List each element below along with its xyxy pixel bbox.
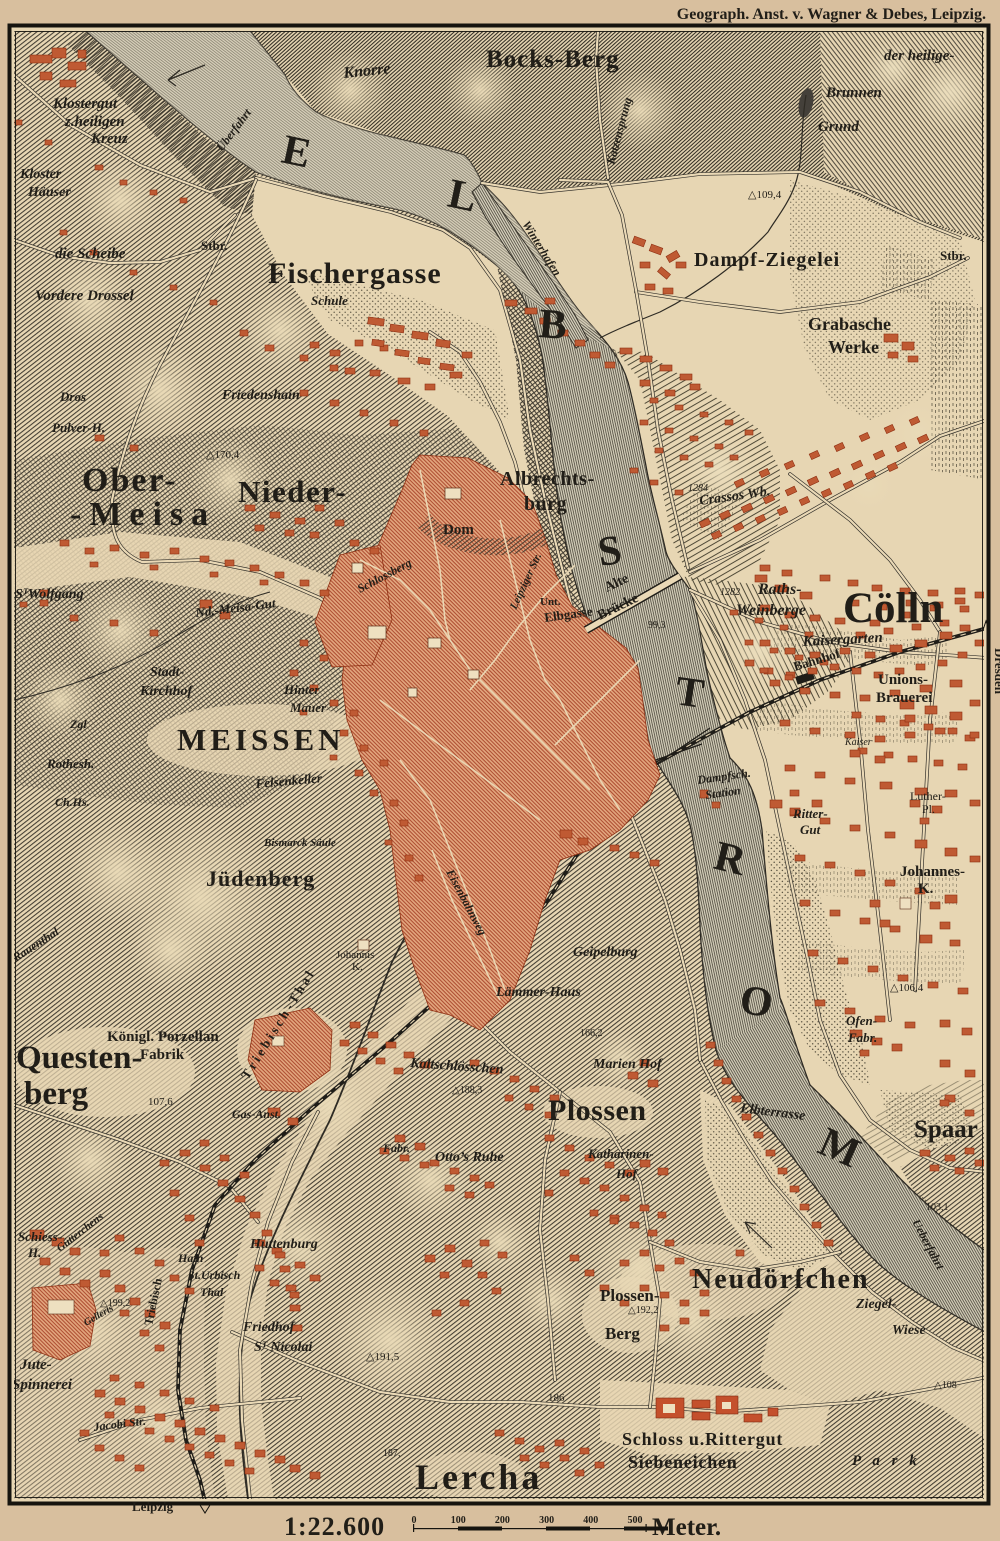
svg-text:△108: △108 [934, 1380, 957, 1391]
svg-text:Friedenshain: Friedenshain [221, 388, 300, 403]
svg-text:Königl. Porzellan: Königl. Porzellan [107, 1029, 219, 1045]
svg-text:500: 500 [628, 1515, 643, 1526]
svg-text:Wiese: Wiese [892, 1323, 926, 1338]
svg-text:Nieder-: Nieder- [238, 474, 347, 509]
svg-text:Siebeneichen: Siebeneichen [628, 1452, 738, 1472]
svg-text:Häuser: Häuser [27, 185, 71, 200]
svg-text:△170,4: △170,4 [206, 449, 240, 461]
svg-text:Ch.Hs.: Ch.Hs. [55, 795, 90, 809]
svg-text:Fabr.: Fabr. [382, 1141, 410, 1155]
svg-text:Dresden: Dresden [992, 648, 1000, 695]
svg-text:Huttenburg: Huttenburg [249, 1237, 318, 1252]
svg-text:Zgl: Zgl [69, 717, 87, 731]
svg-text:Kreuz: Kreuz [90, 131, 128, 147]
svg-text:Grund: Grund [818, 119, 859, 135]
svg-text:Questen-: Questen- [16, 1040, 143, 1076]
svg-text:Unt.: Unt. [540, 596, 561, 608]
svg-text:Kaiser: Kaiser [844, 737, 872, 748]
svg-text:Ritter-: Ritter- [792, 806, 828, 821]
svg-text:Fabr.: Fabr. [847, 1030, 877, 1045]
svg-text:Gas-Anst.: Gas-Anst. [232, 1107, 281, 1121]
svg-text:Geograph. Anst. v. Wagner & De: Geograph. Anst. v. Wagner & Debes, Leipz… [677, 6, 986, 23]
svg-text:Stadt-: Stadt- [150, 665, 185, 680]
svg-text:Schloss u.Rittergut: Schloss u.Rittergut [622, 1429, 783, 1449]
svg-text:Jüdenberg: Jüdenberg [206, 866, 315, 891]
svg-text:Ziegel-: Ziegel- [855, 1297, 897, 1312]
svg-text:berg: berg [24, 1076, 89, 1112]
svg-text:△192,2: △192,2 [628, 1305, 658, 1316]
svg-text:△109,4: △109,4 [748, 189, 782, 201]
svg-text:Pl.: Pl. [922, 802, 935, 816]
svg-text:Unions-: Unions- [878, 672, 928, 688]
svg-text:Hof: Hof [615, 1166, 639, 1181]
svg-text:Johannes-: Johannes- [900, 864, 965, 880]
svg-text:Hain: Hain [177, 1251, 204, 1265]
svg-text:B: B [537, 301, 568, 349]
svg-text:1:22.600: 1:22.600 [284, 1512, 385, 1541]
svg-text:Ober-: Ober- [82, 462, 178, 499]
svg-text:burg: burg [524, 493, 567, 515]
svg-text:H.: H. [27, 1245, 41, 1260]
svg-text:Berg: Berg [605, 1324, 640, 1343]
svg-text:z.heiligen: z.heiligen [64, 114, 125, 130]
svg-text:Raths-: Raths- [757, 581, 802, 598]
svg-text:die Scheibe: die Scheibe [55, 246, 126, 262]
svg-text:Schiess-: Schiess- [18, 1229, 62, 1244]
svg-text:Thal: Thal [200, 1285, 224, 1299]
svg-text:Friedhof: Friedhof [242, 1320, 296, 1335]
svg-text:△188,3: △188,3 [452, 1085, 482, 1096]
svg-text:Bocks-Berg: Bocks-Berg [486, 46, 620, 73]
svg-text:Luther-: Luther- [910, 789, 946, 803]
svg-text:Kirchhof: Kirchhof [139, 684, 193, 699]
svg-text:Fischergasse: Fischergasse [268, 257, 442, 290]
svg-text:Brauerei: Brauerei [876, 690, 932, 706]
svg-text:-Meisa: -Meisa [70, 496, 216, 533]
svg-text:Kloster: Kloster [19, 167, 62, 182]
svg-text:St.Urbisch: St.Urbisch [188, 1268, 241, 1282]
svg-text:MEISSEN: MEISSEN [177, 722, 345, 757]
svg-text:Gut: Gut [800, 822, 821, 837]
svg-text:107,6: 107,6 [148, 1096, 173, 1108]
svg-text:103,1: 103,1 [926, 1202, 949, 1213]
svg-text:300: 300 [539, 1515, 554, 1526]
svg-text:Marien Hof: Marien Hof [592, 1057, 663, 1072]
svg-text:Rothesh.: Rothesh. [46, 756, 94, 771]
svg-text:Bismarck Säule: Bismarck Säule [263, 837, 336, 849]
svg-text:200: 200 [495, 1515, 510, 1526]
svg-text:Brunnen: Brunnen [825, 85, 882, 101]
svg-text:Werke: Werke [828, 337, 879, 357]
svg-text:Stbr.: Stbr. [940, 248, 967, 263]
svg-text:Cölln: Cölln [843, 585, 943, 632]
svg-text:Plossen: Plossen [548, 1094, 647, 1127]
svg-text:400: 400 [583, 1515, 598, 1526]
svg-text:Hinter: Hinter [283, 682, 320, 697]
svg-text:Grabasche: Grabasche [808, 314, 891, 334]
svg-text:Albrechts-: Albrechts- [500, 468, 595, 490]
svg-text:186: 186 [548, 1392, 565, 1404]
svg-text:Neudörfchen: Neudörfchen [692, 1264, 870, 1295]
svg-text:Geipelburg: Geipelburg [573, 945, 638, 960]
svg-text:Pulver-H.: Pulver-H. [52, 420, 105, 435]
svg-text:Katharinen-: Katharinen- [587, 1146, 654, 1161]
svg-text:△106,4: △106,4 [890, 982, 924, 994]
svg-text:Spaar: Spaar [914, 1116, 978, 1143]
svg-text:K.: K. [918, 881, 934, 897]
svg-text:Otto’s Ruhe: Otto’s Ruhe [435, 1150, 504, 1165]
svg-text:Dampf-Ziegelei: Dampf-Ziegelei [694, 249, 840, 271]
svg-text:Fabrik: Fabrik [140, 1047, 185, 1063]
svg-text:Jute-: Jute- [19, 1357, 52, 1373]
svg-text:Dom: Dom [443, 522, 474, 538]
svg-text:Schule: Schule [311, 293, 348, 308]
svg-text:P a r k: P a r k [852, 1453, 921, 1469]
svg-text:187,: 187, [383, 1448, 401, 1459]
svg-text:Klostergut: Klostergut [52, 96, 118, 112]
svg-text:△191,5: △191,5 [366, 1351, 400, 1363]
svg-text:Lämmer-Haus: Lämmer-Haus [495, 985, 581, 1000]
svg-text:1282: 1282 [720, 587, 740, 598]
svg-text:Sᵀ Nicolai: Sᵀ Nicolai [254, 1340, 312, 1355]
svg-text:SᵀWolfgang: SᵀWolfgang [15, 587, 84, 602]
svg-text:Lercha: Lercha [415, 1457, 542, 1497]
svg-text:Weinberge: Weinberge [736, 602, 806, 619]
svg-text:Vordere Drossel: Vordere Drossel [35, 288, 135, 304]
svg-text:der heilige-: der heilige- [884, 48, 954, 64]
svg-text:Plossen-: Plossen- [600, 1286, 660, 1305]
svg-text:Ofen-: Ofen- [846, 1013, 877, 1028]
svg-text:Johannis: Johannis [336, 949, 375, 961]
svg-text:K.: K. [352, 961, 363, 973]
svg-text:Mauer: Mauer [289, 700, 327, 715]
svg-text:Dros: Dros [59, 389, 86, 404]
svg-text:99,3: 99,3 [648, 620, 666, 631]
svg-text:Stbr.: Stbr. [201, 238, 228, 253]
svg-text:100: 100 [451, 1515, 466, 1526]
svg-text:Spinnerei: Spinnerei [12, 1377, 73, 1393]
svg-text:Leipzig: Leipzig [132, 1499, 174, 1514]
svg-text:166,2: 166,2 [580, 1028, 603, 1039]
